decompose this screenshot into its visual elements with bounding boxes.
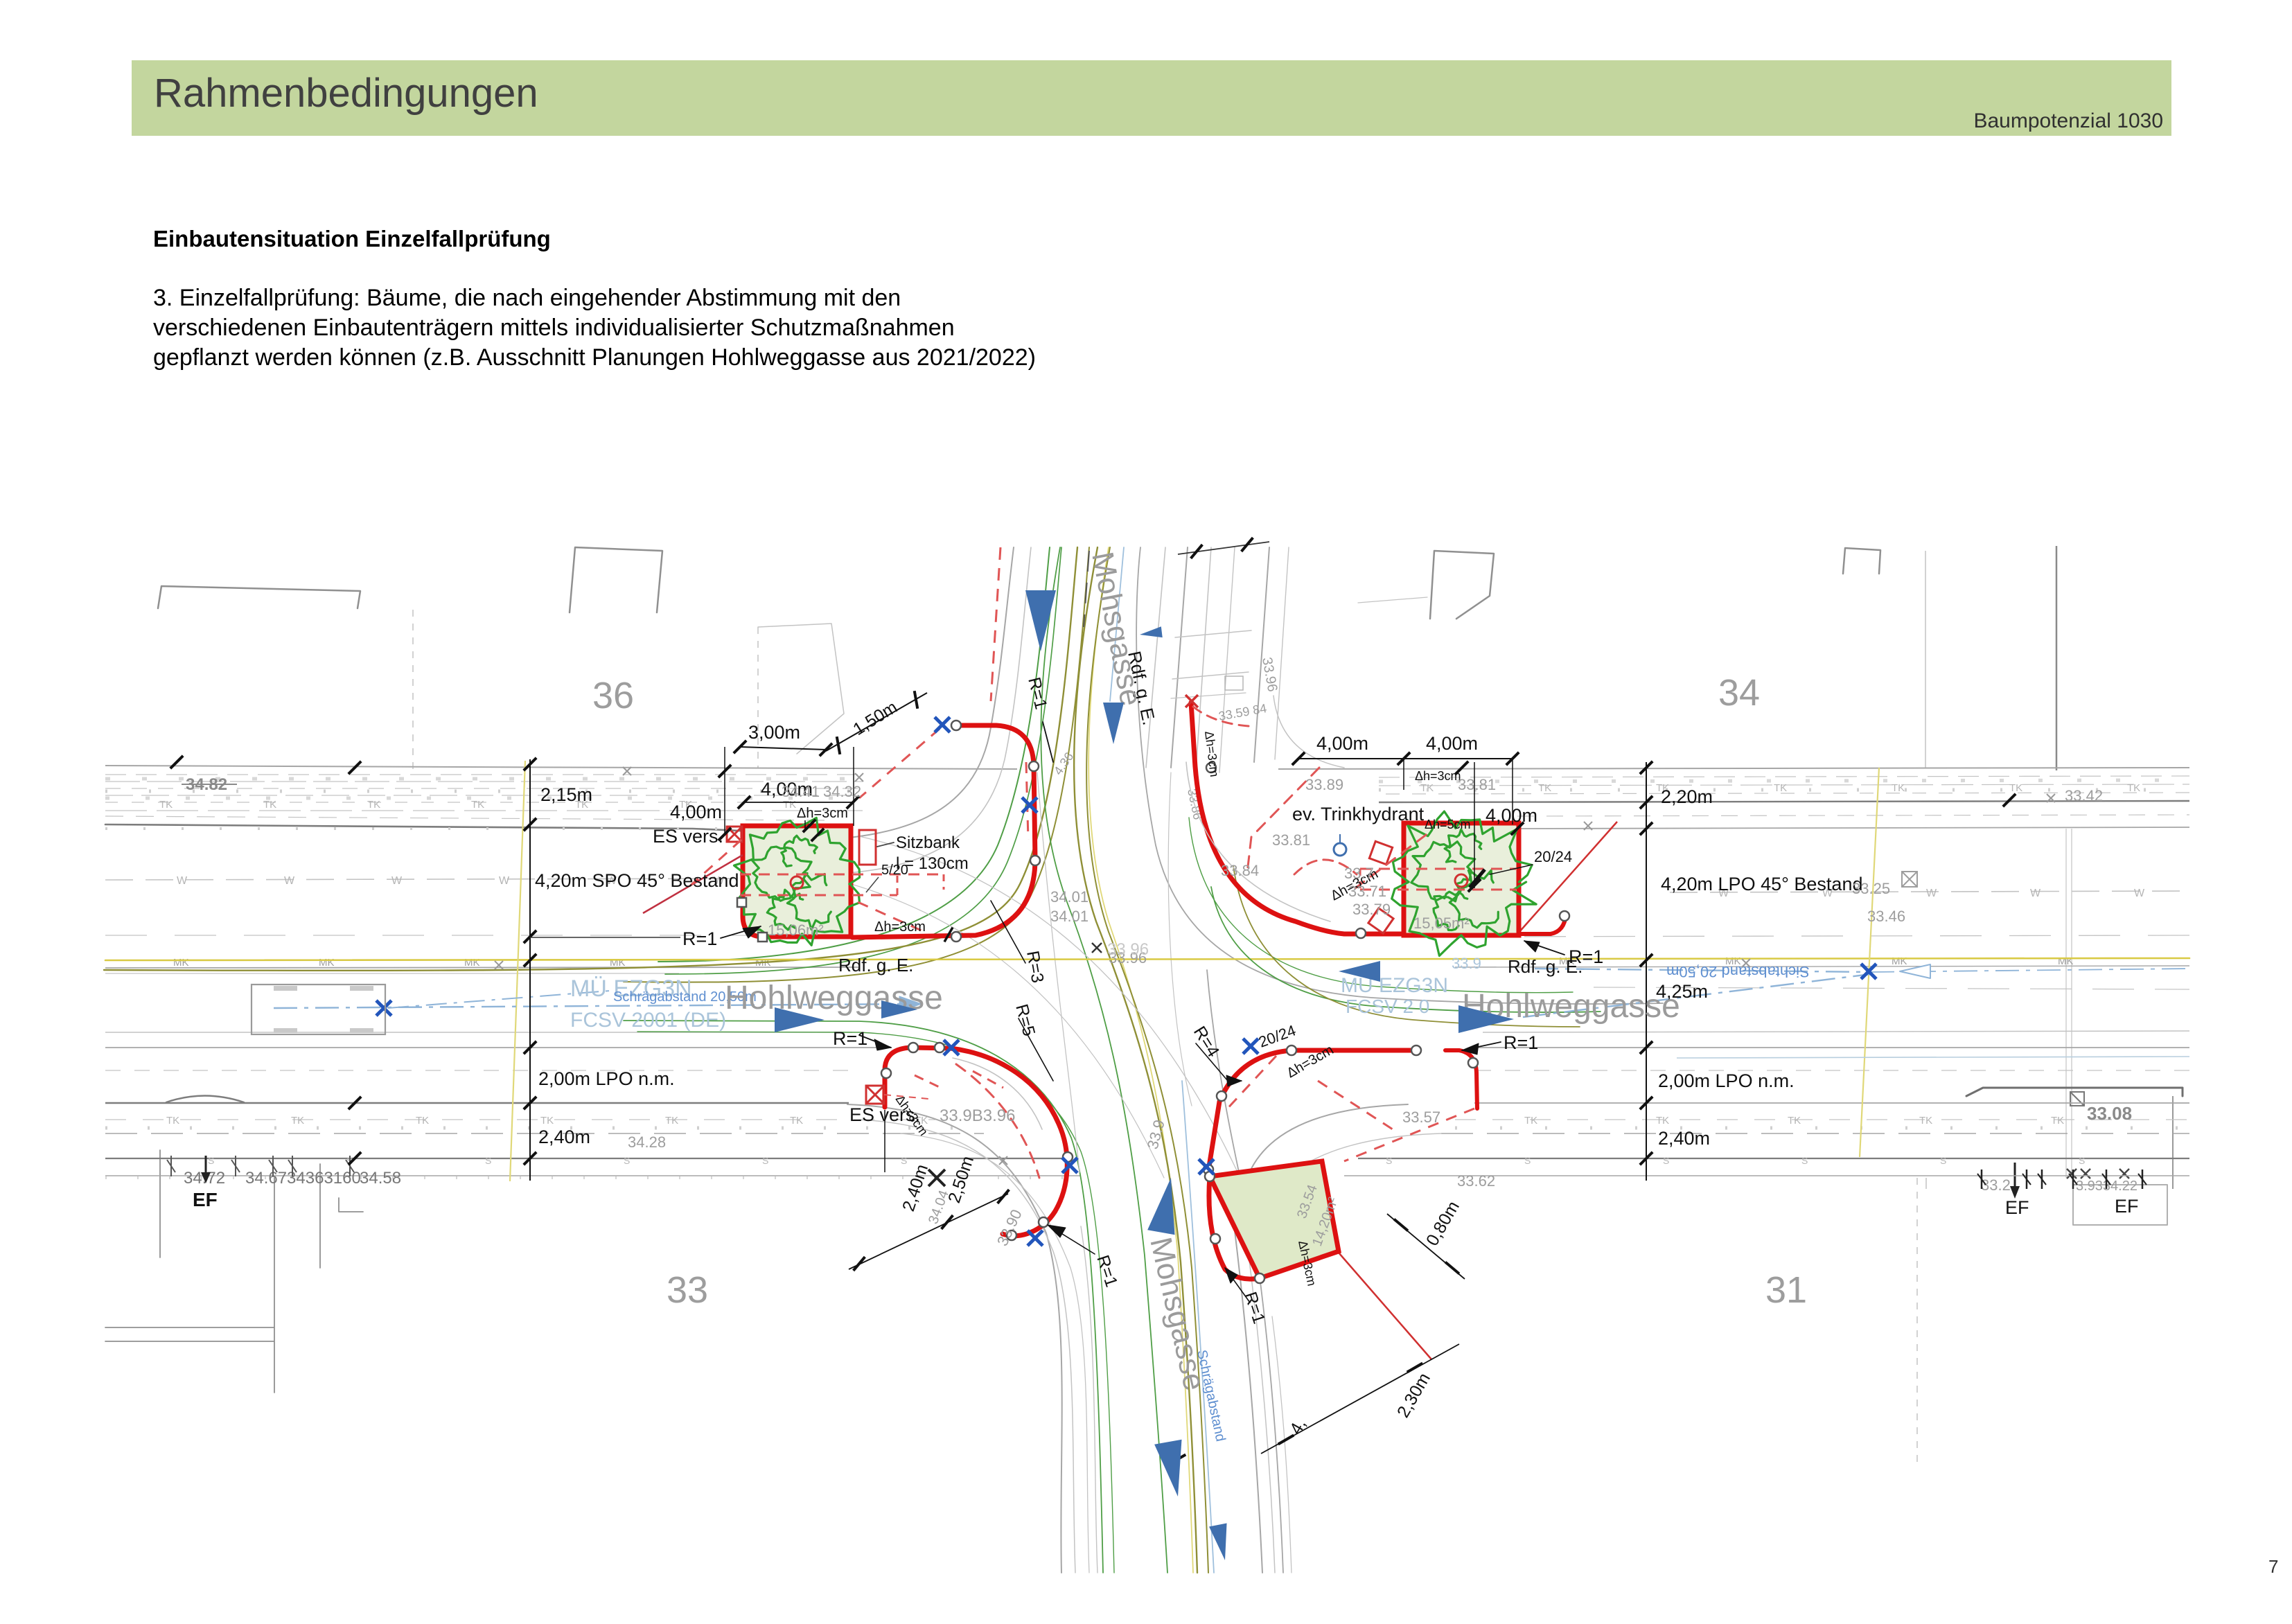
svg-text:FCSV 2 0: FCSV 2 0 (1346, 996, 1429, 1017)
svg-text:TK: TK (1919, 1115, 1932, 1127)
svg-text:W: W (391, 875, 403, 887)
svg-text:S: S (901, 1155, 907, 1166)
svg-text:S: S (2079, 1155, 2085, 1166)
svg-text:33.62: 33.62 (1457, 1172, 1495, 1190)
svg-text:TK: TK (263, 799, 276, 811)
svg-text:33.81: 33.81 (1458, 776, 1496, 793)
svg-text:MK: MK (610, 957, 626, 969)
svg-text:15,06m²: 15,06m² (768, 921, 824, 939)
svg-text:S: S (1940, 1155, 1946, 1166)
svg-text:34: 34 (1718, 672, 1760, 714)
svg-text:1,50m: 1,50m (849, 698, 901, 740)
svg-text:ES vers.: ES vers. (653, 826, 723, 847)
svg-text:MK: MK (2058, 955, 2074, 967)
svg-text:33.79: 33.79 (1352, 901, 1391, 918)
svg-text:S: S (208, 1155, 214, 1166)
svg-text:W: W (499, 875, 510, 887)
svg-text:33.57: 33.57 (1402, 1109, 1440, 1126)
svg-text:33.59 84: 33.59 84 (1217, 701, 1267, 723)
svg-text:R=5: R=5 (1012, 1002, 1039, 1038)
svg-text:W: W (284, 875, 295, 887)
svg-text:EF: EF (2005, 1197, 2029, 1218)
svg-text:TK: TK (783, 799, 796, 811)
svg-text:33.71: 33.71 (1348, 883, 1386, 900)
svg-text:MK: MK (319, 957, 335, 969)
svg-text:2,40m: 2,40m (899, 1162, 932, 1214)
svg-text:TK: TK (291, 1115, 304, 1127)
svg-text:MK: MK (1892, 955, 1907, 967)
svg-text:33: 33 (667, 1269, 708, 1311)
svg-text:33.9: 33.9 (1452, 955, 1481, 972)
svg-text:W: W (2134, 888, 2145, 899)
svg-text:34.32: 34.32 (823, 783, 861, 800)
svg-text:33 96: 33 96 (1107, 940, 1149, 959)
svg-text:36: 36 (592, 675, 634, 716)
svg-text:TK: TK (540, 1115, 554, 1127)
svg-text:2,40m: 2,40m (538, 1127, 590, 1147)
svg-text:EF: EF (2115, 1196, 2139, 1217)
svg-text:Sitzbank: Sitzbank (896, 833, 960, 852)
svg-text:Δh=3cm: Δh=3cm (1415, 769, 1461, 783)
svg-text:Δh=5cm: Δh=5cm (1425, 818, 1471, 831)
svg-text:S: S (762, 1155, 768, 1166)
svg-text:R=1: R=1 (1024, 676, 1050, 712)
svg-text:TK: TK (471, 799, 484, 811)
svg-text:Sichtabstand 20,50m: Sichtabstand 20,50m (1666, 963, 1810, 980)
svg-text:W: W (177, 875, 188, 887)
svg-text:TK: TK (159, 799, 173, 811)
svg-text:33.90: 33.90 (994, 1207, 1025, 1248)
svg-text:TK: TK (1892, 782, 1905, 794)
svg-text:33.42: 33.42 (2065, 787, 2103, 804)
svg-text:4,: 4, (1286, 1415, 1310, 1438)
svg-text:20/24: 20/24 (1534, 848, 1572, 865)
svg-text:TK: TK (1656, 1115, 1669, 1127)
svg-text:TK: TK (416, 1115, 429, 1127)
svg-text:33.84: 33.84 (1221, 862, 1259, 879)
svg-text:Δh=3cm: Δh=3cm (1202, 730, 1222, 778)
svg-text:33.89: 33.89 (1305, 776, 1343, 793)
svg-text:4,00m: 4,00m (1426, 733, 1478, 754)
svg-text:R=1: R=1 (833, 1028, 867, 1049)
svg-text:TK: TK (790, 1115, 803, 1127)
svg-text:MK: MK (464, 957, 480, 969)
svg-text:Δh=3cm: Δh=3cm (874, 919, 926, 935)
svg-text:FCSV 2001 (DE): FCSV 2001 (DE) (570, 1009, 726, 1032)
svg-text:33.96: 33.96 (1259, 656, 1280, 693)
svg-text:2,40m: 2,40m (1658, 1128, 1710, 1149)
svg-text:R=1: R=1 (682, 928, 717, 949)
svg-text:TK: TK (367, 799, 380, 811)
svg-text:R=1: R=1 (1504, 1032, 1538, 1053)
svg-text:2,15m: 2,15m (540, 784, 592, 805)
svg-text:R=3: R=3 (1023, 949, 1048, 985)
svg-text:34.01: 34.01 (1050, 908, 1088, 925)
svg-text:33.9B3.96: 33.9B3.96 (940, 1106, 1015, 1125)
svg-text:Rdf. g. E.: Rdf. g. E. (838, 955, 913, 976)
svg-text:S: S (1524, 1155, 1531, 1166)
svg-text:5/20: 5/20 (881, 863, 908, 878)
svg-text:4,00m: 4,00m (670, 802, 722, 822)
svg-text:4,20m LPO 45° Bestand: 4,20m LPO 45° Bestand (1661, 874, 1862, 894)
svg-text:34.28: 34.28 (628, 1133, 666, 1151)
svg-text:34.41: 34.41 (782, 783, 820, 800)
svg-text:TK: TK (2127, 782, 2140, 794)
svg-text:MK: MK (173, 957, 189, 969)
svg-text:TK: TK (2051, 1115, 2064, 1127)
svg-text:33.25: 33.25 (1852, 880, 1890, 897)
svg-text:0,80m: 0,80m (1422, 1198, 1463, 1249)
svg-text:Δh=3cm: Δh=3cm (797, 806, 848, 821)
svg-text:TK: TK (1524, 1115, 1537, 1127)
svg-text:W: W (1926, 888, 1937, 899)
svg-text:4,20m SPO 45° Bestand: 4,20m SPO 45° Bestand (535, 870, 739, 891)
svg-text:31: 31 (1765, 1269, 1807, 1311)
svg-text:2,00m LPO n.m.: 2,00m LPO n.m. (1658, 1070, 1795, 1091)
svg-text:4,00m: 4,00m (1486, 805, 1537, 826)
svg-text:S: S (1801, 1155, 1808, 1166)
svg-text:TK: TK (1788, 1115, 1801, 1127)
svg-text:TK: TK (2009, 782, 2022, 794)
svg-text:EF: EF (193, 1189, 218, 1210)
svg-text:TK: TK (166, 1115, 179, 1127)
svg-text:33.46: 33.46 (1867, 908, 1905, 925)
svg-text:33.7: 33.7 (1344, 865, 1374, 882)
svg-text:34.6734363160: 34.6734363160 (245, 1169, 361, 1188)
svg-text:34.01: 34.01 (1050, 888, 1088, 906)
svg-text:S: S (624, 1155, 630, 1166)
svg-text:R=1: R=1 (1093, 1253, 1121, 1289)
svg-text:S: S (1386, 1155, 1392, 1166)
svg-text:ev. Trinkhydrant: ev. Trinkhydrant (1292, 804, 1425, 824)
svg-text:S: S (1663, 1155, 1669, 1166)
svg-text:S: S (485, 1155, 491, 1166)
svg-text:TK: TK (1538, 782, 1551, 794)
svg-text:3,00m: 3,00m (748, 722, 800, 743)
svg-text:4,00m: 4,00m (1316, 733, 1368, 754)
svg-text:TK: TK (1774, 782, 1787, 794)
svg-text:15,05m²: 15,05m² (1413, 915, 1470, 932)
svg-text:2,00m LPO n.m.: 2,00m LPO n.m. (538, 1068, 675, 1089)
svg-text:MÜ EZG3N: MÜ EZG3N (1341, 974, 1448, 997)
svg-text:33.81: 33.81 (1272, 831, 1310, 849)
svg-text:W: W (2030, 888, 2041, 899)
svg-text:33.08: 33.08 (2087, 1103, 2132, 1124)
svg-text:2,20m: 2,20m (1661, 786, 1713, 807)
svg-text:TK: TK (665, 1115, 678, 1127)
svg-text:34.58: 34.58 (360, 1169, 401, 1188)
svg-text:33.2: 33.2 (1981, 1176, 2011, 1194)
svg-text:Rdf. g. E.: Rdf. g. E. (1508, 956, 1583, 977)
